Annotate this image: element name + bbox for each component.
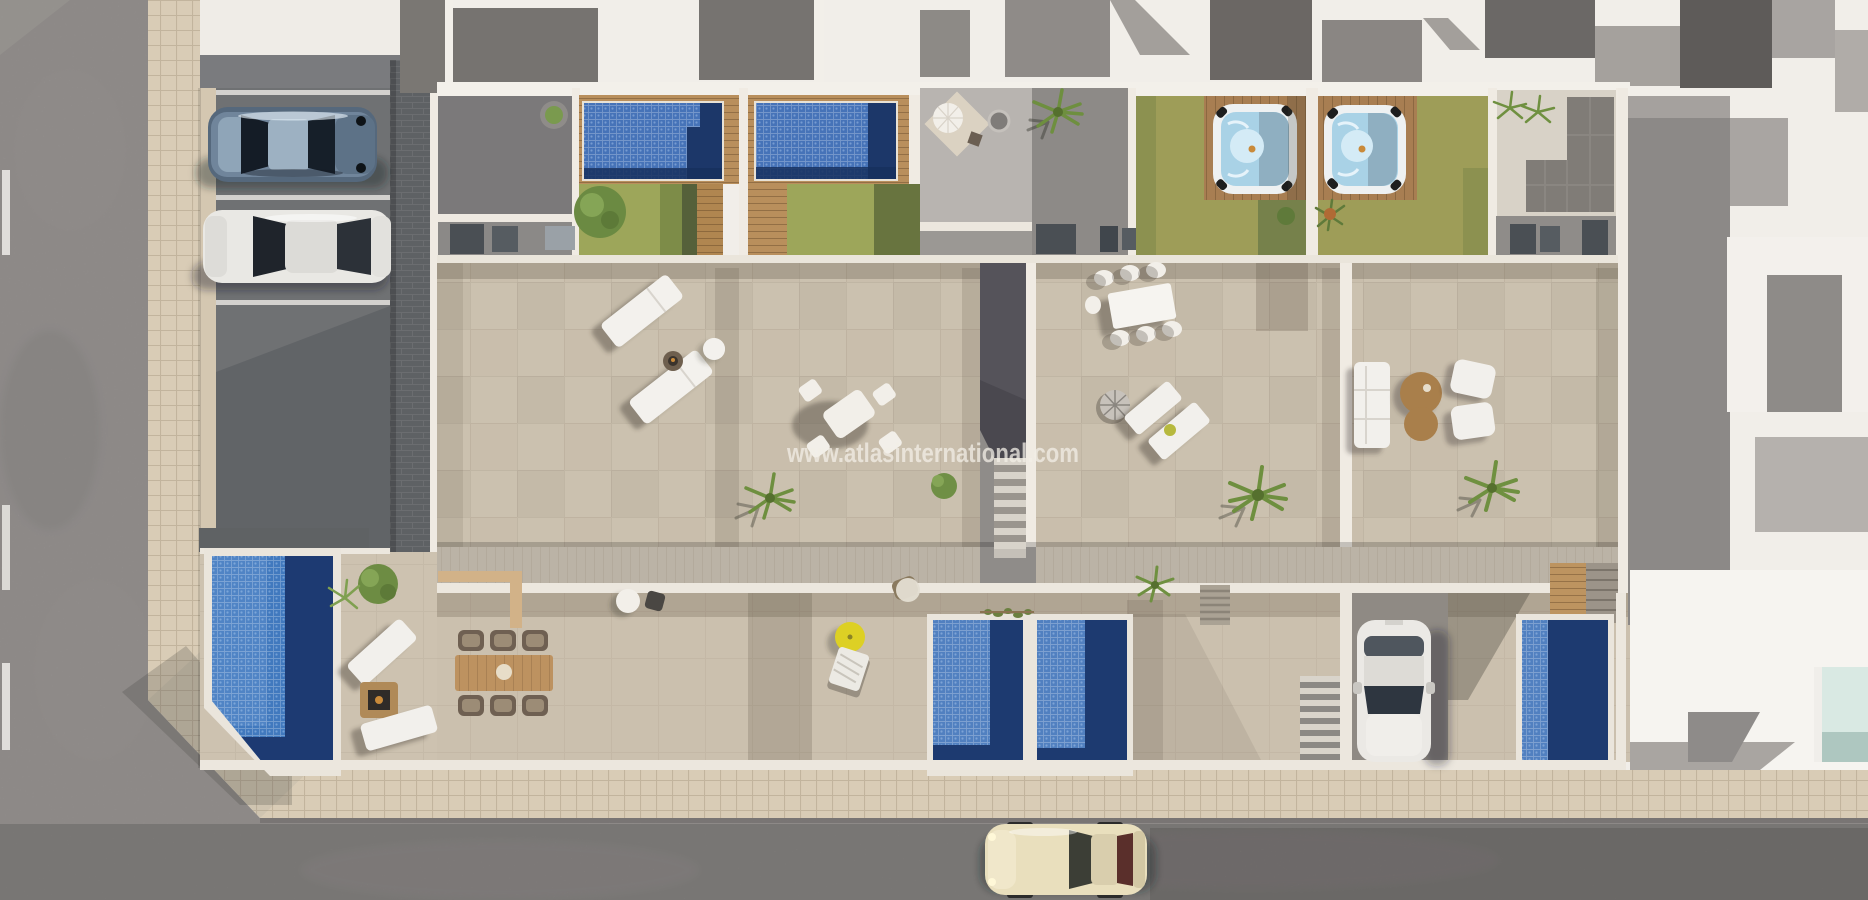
svg-text:www.atlasinternational.com: www.atlasinternational.com	[786, 438, 1079, 468]
